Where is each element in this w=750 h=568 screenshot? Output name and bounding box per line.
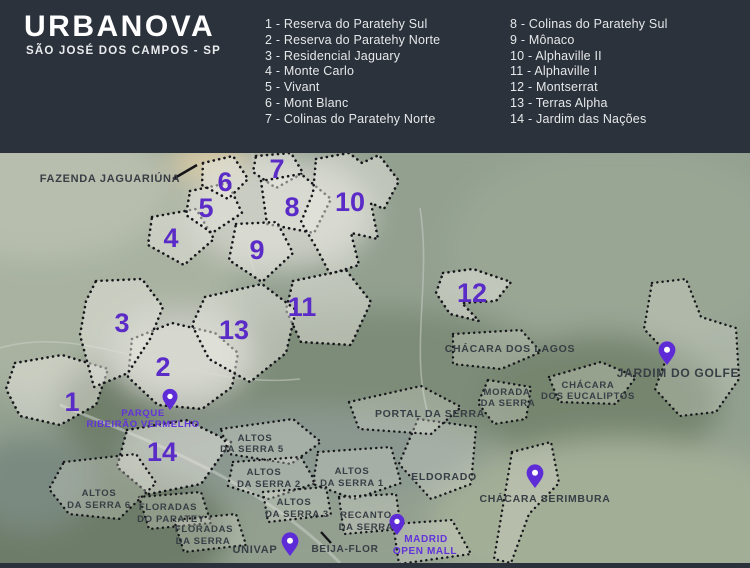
label-jardim-do-golfe: JARDIM DO GOLFE	[617, 366, 740, 380]
legend-item: 12 - Montserrat	[510, 80, 668, 96]
label-eldorado: ELDORADO	[411, 471, 477, 483]
label-altos-da-serra-3-line2: DA SERRA 3	[265, 509, 329, 520]
legend-item: 9 - Mônaco	[510, 33, 668, 49]
page-title: URBANOVA	[24, 10, 215, 44]
legend-item: 1 - Reserva do Paratehy Sul	[265, 17, 440, 33]
label-parque-ribeirao-vermelho-line2: RIBEIRÃO VERMELHO	[86, 419, 199, 430]
region-number-7: 7	[269, 154, 284, 184]
header: URBANOVA SÃO JOSÉ DOS CAMPOS - SP 1 - Re…	[0, 0, 750, 153]
label-altos-da-serra-6-line2: DA SERRA 6	[67, 500, 131, 511]
label-chacara-dos-eucaliptos-line1: CHÁCARA	[562, 380, 615, 391]
label-chacara-dos-lagos: CHÁCARA DOS LAGOS	[445, 342, 576, 355]
label-madrid-open-mall-line2: OPEN MALL	[393, 546, 457, 557]
region-number-11: 11	[288, 292, 317, 322]
region-number-4: 4	[163, 223, 178, 253]
label-altos-da-serra-5-line2: DA SERRA 5	[220, 444, 284, 455]
legend-item: 2 - Reserva do Paratehy Norte	[265, 33, 440, 49]
label-beija-flor: BEIJA-FLOR	[312, 544, 379, 555]
region-number-9: 9	[249, 235, 264, 265]
legend-item: 14 - Jardim das Nações	[510, 112, 668, 128]
label-floradas-da-serra-line2: DA SERRA	[176, 536, 231, 547]
label-chacara-dos-eucaliptos-line2: DOS EUCALIPTOS	[541, 391, 635, 402]
region-number-12: 12	[457, 278, 487, 308]
label-altos-da-serra-6-line1: ALTOS	[82, 488, 117, 499]
label-portal-da-serra: PORTAL DA SERRA	[375, 408, 485, 420]
page-subtitle: SÃO JOSÉ DOS CAMPOS - SP	[26, 45, 221, 57]
legend-column-2: 8 - Colinas do Paratehy Sul 9 - Mônaco 1…	[510, 17, 668, 128]
region-number-13: 13	[219, 315, 249, 345]
region-number-5: 5	[198, 193, 213, 223]
legend-item: 11 - Alphaville I	[510, 64, 668, 80]
legend-item: 8 - Colinas do Paratehy Sul	[510, 17, 668, 33]
label-floradas-do-paratey-line1: FLORADAS	[139, 502, 197, 513]
region-number-3: 3	[114, 308, 129, 338]
region-number-10: 10	[335, 187, 365, 217]
legend-item: 3 - Residencial Jaguary	[265, 49, 440, 65]
label-recanto-da-serra-line1: RECANTO	[340, 510, 392, 521]
region-number-6: 6	[217, 167, 232, 197]
label-fazenda-jaguariuna: FAZENDA JAGUARIÚNA	[40, 172, 181, 185]
label-chacara-serimbura: CHÁCARA SERIMBURA	[479, 492, 610, 505]
label-morada-da-serra-line1: MORADA	[484, 387, 531, 398]
satellite-map: 1 2 3 4 5 6 7 8 9 10 11 12 13 14 FAZENDA…	[0, 153, 750, 563]
legend-column-1: 1 - Reserva do Paratehy Sul 2 - Reserva …	[265, 17, 440, 128]
legend-item: 5 - Vivant	[265, 80, 440, 96]
label-recanto-da-serra-line2: DA SERRA	[339, 522, 394, 533]
legend-item: 7 - Colinas do Paratehy Norte	[265, 112, 440, 128]
map-image: 1 2 3 4 5 6 7 8 9 10 11 12 13 14 FAZENDA…	[0, 153, 750, 563]
region-number-8: 8	[284, 192, 299, 222]
region-number-14: 14	[147, 437, 177, 467]
label-altos-da-serra-2-line2: DA SERRA 2	[237, 479, 301, 490]
label-parque-ribeirao-vermelho-line1: PARQUE	[121, 408, 165, 419]
legend-item: 10 - Alphaville II	[510, 49, 668, 65]
label-altos-da-serra-5-line1: ALTOS	[238, 433, 273, 444]
label-altos-da-serra-2-line1: ALTOS	[247, 467, 282, 478]
legend-item: 13 - Terras Alpha	[510, 96, 668, 112]
legend-item: 4 - Monte Carlo	[265, 64, 440, 80]
label-univap: UNIVAP	[233, 544, 278, 556]
label-altos-da-serra-1-line1: ALTOS	[335, 466, 370, 477]
label-morada-da-serra-line2: DA SERRA	[481, 398, 536, 409]
label-altos-da-serra-1-line2: DA SERRA 1	[320, 478, 384, 489]
region-number-2: 2	[155, 352, 170, 382]
label-madrid-open-mall-line1: MADRID	[404, 534, 448, 545]
label-altos-da-serra-3-line1: ALTOS	[277, 497, 312, 508]
region-number-1: 1	[64, 387, 79, 417]
label-floradas-da-serra-line1: FLORADAS	[175, 524, 233, 535]
legend-item: 6 - Mont Blanc	[265, 96, 440, 112]
